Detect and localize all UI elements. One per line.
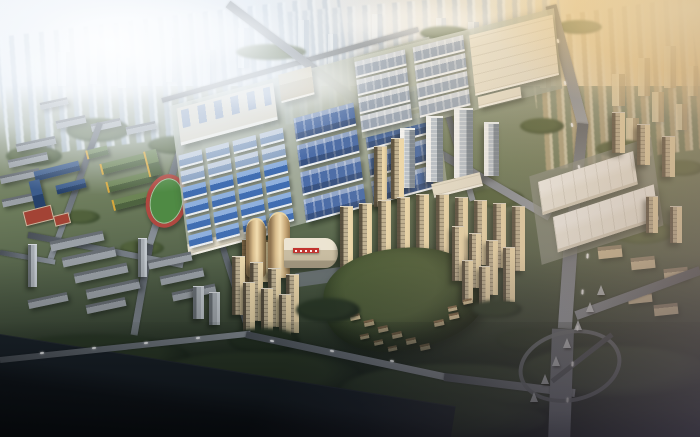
apartment-tower bbox=[209, 292, 220, 325]
tree-cluster bbox=[472, 300, 522, 318]
city-tower bbox=[646, 196, 658, 233]
transmission-tower bbox=[563, 338, 571, 348]
city-tower bbox=[670, 206, 682, 243]
residential-tower bbox=[391, 138, 404, 199]
apartment-tower bbox=[138, 238, 147, 277]
residential-tower bbox=[503, 247, 515, 302]
office-tower bbox=[484, 122, 499, 176]
residential-tower bbox=[462, 260, 473, 303]
distant-tower bbox=[652, 92, 664, 122]
city-slab bbox=[630, 256, 655, 270]
car bbox=[581, 289, 583, 294]
distant-tower bbox=[612, 74, 625, 106]
cloud bbox=[320, 0, 510, 44]
apartment-tower bbox=[28, 244, 37, 287]
city-tower bbox=[612, 112, 625, 153]
aerial-rendering bbox=[0, 0, 700, 437]
car bbox=[270, 340, 274, 343]
cloud bbox=[150, 56, 380, 110]
car bbox=[566, 397, 568, 402]
distant-tower bbox=[638, 58, 650, 96]
mall-red-sign bbox=[293, 248, 319, 253]
transmission-tower bbox=[586, 302, 594, 312]
residential-tower bbox=[374, 146, 387, 207]
apartment-tower bbox=[193, 286, 204, 319]
city-slab bbox=[597, 245, 622, 259]
transmission-tower bbox=[552, 356, 560, 366]
city-tower bbox=[637, 124, 650, 165]
transmission-tower bbox=[541, 374, 549, 384]
tree-cluster bbox=[296, 298, 360, 322]
car bbox=[586, 253, 588, 258]
car bbox=[576, 325, 578, 330]
office-tower bbox=[454, 108, 473, 178]
transmission-tower bbox=[530, 392, 538, 402]
car bbox=[330, 350, 334, 353]
car bbox=[571, 361, 573, 366]
city-tower bbox=[662, 136, 675, 177]
mall-podium bbox=[284, 238, 338, 268]
transmission-tower bbox=[597, 285, 605, 295]
scene-shapes bbox=[0, 0, 700, 437]
tree-cluster bbox=[520, 118, 564, 134]
office-tower bbox=[426, 116, 443, 182]
distant-tower bbox=[688, 66, 698, 96]
distant-tower bbox=[664, 46, 676, 88]
distant-tower bbox=[676, 104, 687, 130]
car bbox=[390, 360, 394, 363]
